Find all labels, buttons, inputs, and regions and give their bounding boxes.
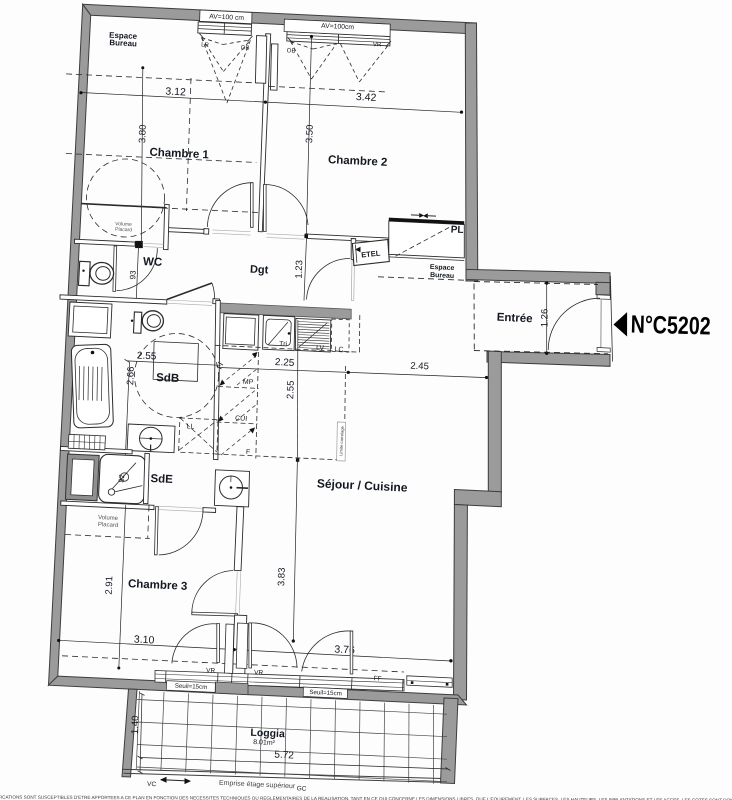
svg-text:8.01m²: 8.01m² [253,739,276,747]
svg-text:2.25: 2.25 [275,357,295,369]
svg-text:3.80: 3.80 [137,124,149,143]
svg-text:Dgt: Dgt [250,264,269,277]
svg-text:3.50: 3.50 [304,124,316,143]
svg-text:SdE: SdE [150,473,173,486]
svg-text:WC: WC [143,256,163,269]
svg-text:1.23: 1.23 [294,260,306,279]
svg-text:N°C5202: N°C5202 [630,311,711,341]
svg-text:1.40: 1.40 [130,715,142,734]
svg-text:3.83: 3.83 [276,567,288,586]
svg-text:VR: VR [206,667,216,674]
svg-text:VC: VC [147,781,157,788]
svg-text:MP: MP [243,379,254,387]
svg-text:LR: LR [201,42,210,48]
svg-text:OB: OB [241,45,250,51]
svg-text:Placard: Placard [98,522,119,529]
svg-text:82: 82 [117,474,126,483]
svg-text:Bureau: Bureau [430,272,454,280]
svg-text:LL: LL [187,423,195,430]
svg-text:3.10: 3.10 [134,634,155,647]
svg-text:2.66: 2.66 [125,366,137,385]
svg-text:Volume: Volume [98,515,119,522]
svg-text:VR: VR [254,669,264,676]
svg-text:Bureau: Bureau [109,38,137,48]
svg-text:3.42: 3.42 [356,91,377,104]
svg-text:VR: VR [373,42,382,48]
svg-text:2.55: 2.55 [137,351,157,363]
svg-text:LC: LC [334,346,343,353]
svg-text:93: 93 [128,270,137,280]
svg-text:2.45: 2.45 [410,361,429,373]
svg-text:3.12: 3.12 [165,86,186,99]
svg-text:GC: GC [297,785,307,792]
svg-text:1.26: 1.26 [540,309,551,328]
svg-text:Placard: Placard [115,227,132,234]
svg-text:Tri: Tri [279,341,288,348]
svg-text:2.55: 2.55 [285,380,297,399]
svg-text:Espace: Espace [430,264,455,272]
svg-text:OB: OB [287,48,296,54]
svg-text:PL: PL [450,225,463,237]
svg-text:FF: FF [373,675,381,682]
svg-text:CUI: CUI [235,415,247,423]
svg-text:5.72: 5.72 [274,750,294,762]
svg-text:2.91: 2.91 [104,576,116,595]
svg-text:F: F [246,449,251,456]
svg-text:SdB: SdB [156,372,180,385]
svg-text:Entrée: Entrée [496,312,532,326]
svg-text:LV: LV [316,345,325,352]
